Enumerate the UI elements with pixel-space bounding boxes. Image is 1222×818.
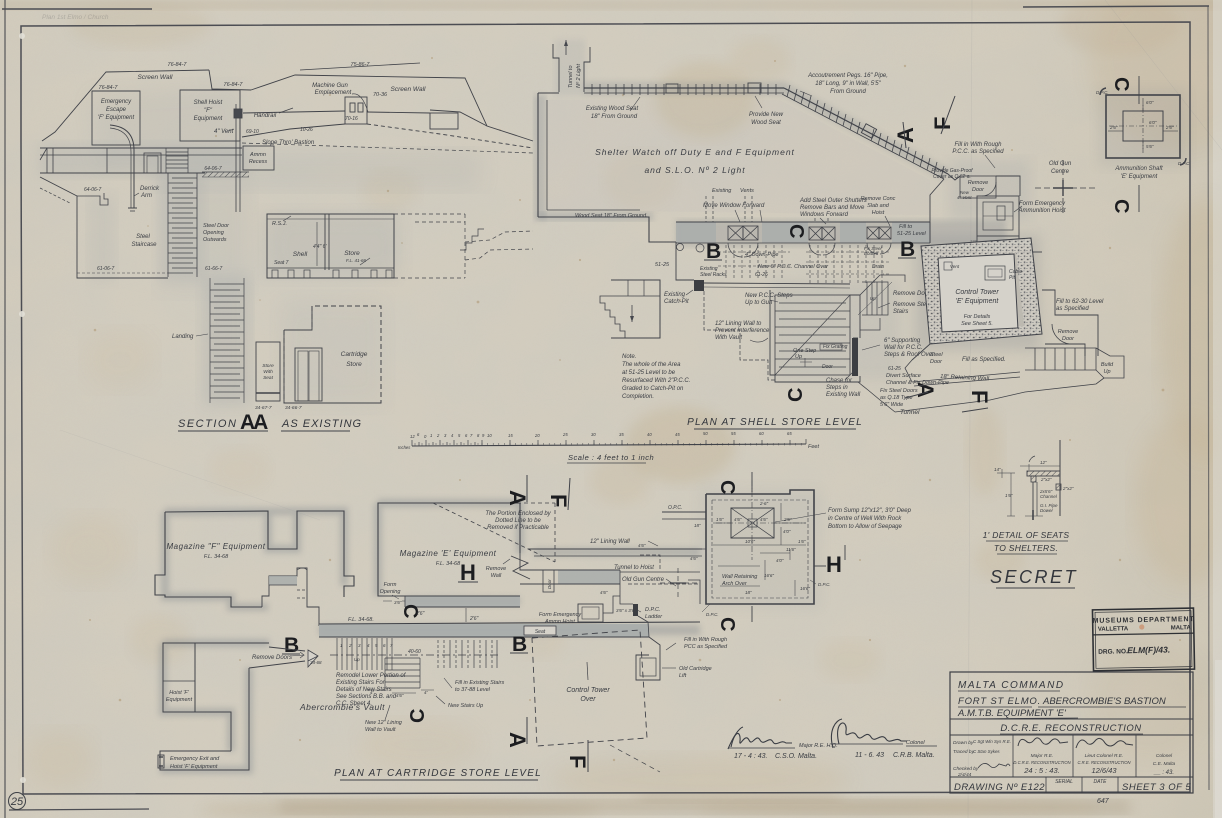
svg-text:C: C — [399, 604, 421, 618]
svg-text:2'6": 2'6" — [1165, 125, 1174, 130]
svg-text:Prevent Interference: Prevent Interference — [715, 328, 770, 334]
svg-text:Hoist 'F' Equipment: Hoist 'F' Equipment — [170, 764, 218, 770]
svg-text:16'6": 16'6" — [764, 573, 774, 578]
svg-text:'F' Equipment: 'F' Equipment — [98, 115, 135, 121]
svg-text:Landing: Landing — [172, 334, 194, 340]
svg-text:1'6": 1'6" — [798, 539, 806, 544]
svg-text:Door: Door — [822, 364, 833, 370]
svg-text:Nº 2 Light: Nº 2 Light — [575, 64, 582, 88]
svg-text:Remove Bars and Move: Remove Bars and Move — [800, 205, 865, 211]
svg-text:"F": "F" — [204, 108, 213, 114]
svg-text:4': 4' — [424, 690, 428, 695]
svg-text:4'0": 4'0" — [783, 529, 791, 534]
svg-text:Vent: Vent — [950, 264, 960, 269]
svg-text:Door: Door — [1062, 336, 1075, 342]
svg-text:11'6": 11'6" — [786, 547, 796, 552]
svg-text:10: 10 — [487, 433, 492, 438]
svg-text:Escape: Escape — [106, 107, 127, 113]
svg-text:Wall Retaining: Wall Retaining — [722, 574, 758, 580]
svg-text:F.L. 41-66: F.L. 41-66 — [346, 258, 366, 263]
svg-text:18" From Ground: 18" From Ground — [591, 114, 638, 120]
svg-text:C: C — [785, 388, 807, 402]
svg-text:C: C — [716, 617, 738, 631]
svg-text:61-25: 61-25 — [888, 366, 901, 372]
svg-text:Fill to 62-30 Level: Fill to 62-30 Level — [1056, 299, 1104, 305]
svg-text:65: 65 — [787, 431, 792, 436]
svg-text:in Centre of Well With Rock: in Centre of Well With Rock — [828, 516, 902, 522]
svg-text:From Ground: From Ground — [830, 89, 866, 95]
svg-text:34-68: 34-68 — [310, 660, 322, 665]
svg-text:Emergency Exit and: Emergency Exit and — [170, 756, 220, 762]
svg-text:MALTA: MALTA — [1171, 625, 1192, 631]
svg-text:Drain: Drain — [872, 264, 884, 270]
svg-text:Emplacement: Emplacement — [315, 90, 352, 96]
svg-text:PCC as Specified: PCC as Specified — [684, 644, 728, 650]
svg-text:70-36: 70-36 — [373, 92, 388, 98]
svg-text:VALLETTA: VALLETTA — [1098, 626, 1129, 633]
svg-text:1: 1 — [430, 433, 432, 438]
svg-text:TO SHELTERS.: TO SHELTERS. — [994, 543, 1058, 553]
svg-text:F: F — [930, 117, 955, 130]
svg-text:A: A — [505, 732, 530, 748]
svg-text:'E' Equipment: 'E' Equipment — [956, 298, 1000, 305]
svg-text:New Stairs Up: New Stairs Up — [448, 703, 483, 709]
svg-text:Machine Gun: Machine Gun — [312, 83, 348, 89]
svg-text:Build: Build — [1101, 362, 1114, 368]
svg-text:Magazine "F" Equipment: Magazine "F" Equipment — [167, 542, 266, 551]
svg-text:Details of New Stairs: Details of New Stairs — [336, 687, 392, 693]
svg-text:61-06-7: 61-06-7 — [97, 266, 114, 272]
svg-text:Arm: Arm — [140, 193, 152, 199]
svg-text:14": 14" — [994, 467, 1001, 472]
svg-text:MALTA COMMAND: MALTA COMMAND — [958, 680, 1065, 691]
svg-text:D.C.R.E. RECONSTRUCTION: D.C.R.E. RECONSTRUCTION — [1013, 760, 1071, 765]
svg-text:F: F — [546, 494, 571, 507]
svg-text:Scale : 4 feet to 1 inch: Scale : 4 feet to 1 inch — [568, 453, 654, 462]
svg-text:DRAWING Nº E122: DRAWING Nº E122 — [954, 782, 1045, 793]
svg-text:as Specified: as Specified — [1056, 306, 1089, 312]
svg-text:25: 25 — [562, 432, 568, 437]
svg-text:50: 50 — [703, 431, 708, 436]
svg-text:F: F — [967, 390, 992, 403]
svg-text:Seat 7: Seat 7 — [274, 260, 289, 266]
svg-text:76-84-7: 76-84-7 — [224, 82, 244, 88]
svg-text:Up: Up — [354, 657, 360, 662]
svg-text:D.P.C.: D.P.C. — [818, 582, 831, 587]
svg-text:Remove Steel: Remove Steel — [893, 302, 931, 308]
svg-text:SHEET 3 OF 5: SHEET 3 OF 5 — [1122, 782, 1191, 793]
svg-text:34-66-7: 34-66-7 — [285, 405, 302, 411]
svg-text:12: 12 — [410, 434, 415, 439]
svg-text:Control Tower: Control Tower — [566, 687, 610, 694]
svg-text:40: 40 — [647, 432, 652, 437]
svg-text:C: C — [1110, 77, 1132, 91]
svg-text:Existing Wood Seat: Existing Wood Seat — [586, 106, 639, 112]
svg-text:C.E. Malta: C.E. Malta — [1153, 761, 1176, 767]
svg-text:Arch Over: Arch Over — [721, 581, 748, 587]
svg-text:Lieut Colonel R.E.: Lieut Colonel R.E. — [1085, 753, 1124, 759]
svg-text:18": 18" — [745, 590, 752, 595]
svg-text:A.M.T.B. EQUIPMENT 'E': A.M.T.B. EQUIPMENT 'E' — [957, 708, 1067, 719]
svg-text:Fill as Specified.: Fill as Specified. — [962, 357, 1006, 363]
svg-text:Remove: Remove — [968, 180, 988, 186]
svg-text:Ammn Hoist: Ammn Hoist — [544, 619, 575, 625]
svg-text:4'6": 4'6" — [600, 590, 608, 595]
svg-text:C: C — [785, 224, 807, 238]
svg-text:35: 35 — [619, 432, 624, 437]
svg-text:70-16: 70-16 — [345, 116, 358, 122]
svg-text:Chase for: Chase for — [826, 378, 853, 384]
svg-text:Windows Forward: Windows Forward — [800, 212, 849, 218]
svg-text:A: A — [505, 490, 530, 506]
svg-text:18": 18" — [694, 523, 701, 528]
svg-text:FORT ST ELMO.: FORT ST ELMO. — [958, 696, 1041, 707]
svg-text:at 51-25 Level to be: at 51-25 Level to be — [622, 370, 676, 376]
svg-text:Fix Steel Doors: Fix Steel Doors — [880, 388, 918, 394]
svg-text:Recess: Recess — [249, 159, 268, 165]
svg-text:Drawn by: Drawn by — [953, 740, 974, 746]
svg-text:Fill to: Fill to — [899, 224, 912, 230]
svg-text:Opening: Opening — [203, 230, 225, 236]
svg-text:Seat: Seat — [263, 375, 274, 381]
svg-text:6'0": 6'0" — [1146, 100, 1154, 105]
svg-text:See Sections B.B. and: See Sections B.B. and — [336, 694, 397, 700]
svg-text:H: H — [460, 560, 476, 585]
svg-text:F: F — [565, 755, 590, 768]
svg-text:Existing: Existing — [664, 292, 686, 298]
svg-text:64-06-7: 64-06-7 — [84, 187, 101, 193]
svg-text:Colonel: Colonel — [906, 740, 925, 746]
svg-text:ELM(F)/43.: ELM(F)/43. — [1127, 645, 1170, 656]
svg-text:PLAN AT SHELL STORE LEVEL: PLAN AT SHELL STORE LEVEL — [687, 417, 863, 428]
svg-text:Old Cartridge: Old Cartridge — [679, 666, 712, 672]
svg-text:Store: Store — [262, 363, 274, 369]
svg-text:40-60: 40-60 — [408, 649, 421, 655]
svg-text:12": 12" — [1040, 460, 1047, 465]
svg-text:Shell Hoist: Shell Hoist — [194, 100, 223, 106]
svg-text:Up: Up — [1103, 369, 1110, 375]
svg-text:Ammn: Ammn — [249, 152, 266, 158]
svg-text:Outwards: Outwards — [203, 237, 227, 243]
svg-text:60: 60 — [759, 431, 764, 436]
svg-text:4" Vent: 4" Vent — [957, 195, 972, 200]
svg-text:Steps & Roof Over: Steps & Roof Over — [884, 352, 935, 358]
svg-text:Form Emergency: Form Emergency — [1019, 201, 1066, 207]
svg-text:Steps in: Steps in — [826, 385, 848, 391]
svg-text:F.L. 34-68.: F.L. 34-68. — [348, 617, 374, 623]
svg-text:Fill in With Rough: Fill in With Rough — [955, 142, 1003, 148]
svg-text:C Sgt Win Sys R.E.: C Sgt Win Sys R.E. — [973, 739, 1011, 744]
svg-text:Bottom to Allow of Seepage: Bottom to Allow of Seepage — [828, 524, 902, 530]
svg-text:Seat: Seat — [535, 629, 546, 635]
svg-text:51-25 Level: 51-25 Level — [897, 231, 927, 237]
svg-text:Hoist 'F': Hoist 'F' — [169, 690, 189, 696]
svg-text:The Portion Enclosed by: The Portion Enclosed by — [485, 511, 551, 517]
svg-text:1' DETAIL OF SEATS: 1' DETAIL OF SEATS — [983, 530, 1070, 540]
svg-text:F.L. 34-68: F.L. 34-68 — [204, 554, 229, 560]
svg-text:Completion.: Completion. — [622, 394, 654, 400]
svg-text:Stairs: Stairs — [893, 309, 908, 315]
svg-text:1'6": 1'6" — [1005, 493, 1013, 498]
svg-text:R.S.J.: R.S.J. — [272, 221, 287, 227]
svg-text:C: C — [716, 480, 738, 494]
svg-text:C.R.B. Malta.: C.R.B. Malta. — [893, 752, 935, 759]
svg-text:Abercrombie's Vault: Abercrombie's Vault — [299, 702, 385, 712]
svg-text:Opening: Opening — [380, 589, 402, 595]
svg-text:Note.: Note. — [622, 354, 636, 360]
svg-text:30: 30 — [591, 432, 596, 437]
svg-text:51-25: 51-25 — [655, 262, 670, 268]
svg-text:Steel Racks: Steel Racks — [700, 272, 727, 278]
svg-text:Equipment: Equipment — [194, 116, 223, 122]
svg-text:The whole of the Area: The whole of the Area — [622, 362, 681, 368]
svg-text:Over: Over — [580, 696, 596, 703]
svg-text:Up to Gun: Up to Gun — [745, 300, 773, 306]
svg-text:Hoist: Hoist — [872, 210, 885, 216]
svg-text:With Vault: With Vault — [715, 335, 742, 341]
svg-text:New P.C.C. Steps: New P.C.C. Steps — [745, 293, 793, 299]
svg-text:SERIAL: SERIAL — [1055, 779, 1073, 785]
svg-text:Steel: Steel — [136, 234, 150, 240]
svg-text:Fix Grating: Fix Grating — [823, 344, 848, 350]
svg-text:Form Sump 12"x12", 3'0" Deep: Form Sump 12"x12", 3'0" Deep — [828, 508, 912, 514]
svg-text:O.P.C.: O.P.C. — [668, 505, 682, 511]
svg-text:Ammunition Shaft: Ammunition Shaft — [1114, 166, 1163, 172]
svg-text:25: 25 — [10, 796, 24, 808]
svg-text:4'6": 4'6" — [396, 693, 404, 698]
svg-text:Steel: Steel — [930, 352, 943, 358]
svg-text:Emergency: Emergency — [101, 99, 132, 105]
svg-text:ABERCROMBIE'S BASTION: ABERCROMBIE'S BASTION — [1042, 696, 1166, 707]
svg-text:Screen Wall: Screen Wall — [391, 86, 426, 93]
svg-text:Remove Conc: Remove Conc — [861, 196, 896, 202]
svg-text:D.C.R.E. RECONSTRUCTION: D.C.R.E. RECONSTRUCTION — [1000, 723, 1141, 734]
svg-text:D.P.C.: D.P.C. — [645, 607, 661, 613]
svg-text:2/4/44: 2/4/44 — [957, 772, 972, 778]
svg-text:18" Long, 9" in Wall, 5'5": 18" Long, 9" in Wall, 5'5" — [815, 81, 881, 87]
svg-text:Catch-Pit: Catch-Pit — [664, 299, 689, 305]
svg-text:Move Window Forward: Move Window Forward — [703, 203, 765, 209]
svg-text:Door: Door — [547, 579, 552, 589]
svg-text:45: 45 — [675, 432, 680, 437]
svg-text:C.S.O. Malta.: C.S.O. Malta. — [775, 753, 817, 760]
svg-text:Derrick: Derrick — [140, 186, 160, 192]
svg-text:Control Tower: Control Tower — [955, 289, 999, 296]
svg-text:to 37-88 Level: to 37-88 Level — [455, 687, 491, 693]
svg-text:69-10: 69-10 — [246, 129, 259, 135]
svg-text:Pit: Pit — [1009, 275, 1015, 281]
svg-text:Divert Surface: Divert Surface — [886, 373, 921, 379]
svg-text:Traced by: Traced by — [953, 749, 975, 755]
svg-text:Fill in With Rough: Fill in With Rough — [684, 637, 727, 643]
svg-text:Remove: Remove — [486, 566, 506, 572]
svg-text:2'6": 2'6" — [469, 616, 479, 622]
svg-text:Door: Door — [930, 359, 943, 365]
svg-text:Equipment: Equipment — [166, 697, 193, 703]
svg-text:12" Lining Wall: 12" Lining Wall — [590, 539, 630, 545]
svg-text:16'6": 16'6" — [800, 586, 810, 591]
svg-text:Steel Door: Steel Door — [203, 223, 230, 229]
svg-text:61-26: 61-26 — [755, 272, 768, 278]
svg-text:Cartridge: Cartridge — [341, 351, 368, 358]
svg-text:Remove: Remove — [1058, 329, 1078, 335]
svg-text:2: 2 — [348, 643, 352, 648]
svg-text:Wall for P.C.C.: Wall for P.C.C. — [884, 345, 923, 351]
svg-text:Magazine 'E' Equipment: Magazine 'E' Equipment — [400, 549, 497, 558]
svg-text:12/6/43: 12/6/43 — [1091, 766, 1117, 775]
svg-text:Form Emergency: Form Emergency — [539, 612, 582, 618]
svg-text:and S.L.O. Nº 2 Light: and S.L.O. Nº 2 Light — [644, 165, 745, 175]
svg-text:DATE: DATE — [1094, 779, 1108, 785]
svg-text:17 - 4 : 43.: 17 - 4 : 43. — [734, 753, 768, 760]
svg-text:1'6": 1'6" — [716, 517, 724, 522]
svg-text:P.C.C. as Specified: P.C.C. as Specified — [952, 149, 1004, 155]
svg-text:C: C — [407, 709, 429, 723]
svg-text:2"x2": 2"x2" — [1040, 477, 1052, 482]
svg-text:Provide New: Provide New — [749, 112, 784, 118]
svg-text:Slope Thro' Bastion: Slope Thro' Bastion — [262, 140, 315, 146]
svg-text:Slab and: Slab and — [867, 203, 890, 209]
svg-text:Door: Door — [972, 187, 985, 193]
svg-text:11 - 6. 43: 11 - 6. 43 — [855, 752, 884, 759]
svg-text:Existing Stairs For: Existing Stairs For — [336, 680, 386, 686]
svg-text:Fill in Existing Stairs: Fill in Existing Stairs — [455, 680, 504, 686]
svg-text:For Details: For Details — [964, 314, 991, 320]
svg-text:New 12" Lining: New 12" Lining — [365, 720, 403, 726]
svg-text:__ : 43.: __ : 43. — [1153, 770, 1174, 776]
svg-text:C Stan Sykes: C Stan Sykes — [973, 749, 1000, 754]
svg-text:Staircase: Staircase — [131, 242, 157, 248]
svg-text:76-84-7: 76-84-7 — [168, 62, 188, 68]
svg-text:55: 55 — [731, 431, 736, 436]
svg-text:4'6": 4'6" — [760, 517, 768, 522]
svg-text:F.L. 34-68: F.L. 34-68 — [436, 561, 461, 567]
svg-text:Wood Seat 18" From Ground.: Wood Seat 18" From Ground. — [575, 213, 648, 219]
svg-text:Old Gun: Old Gun — [1049, 161, 1072, 167]
svg-text:Up: Up — [795, 354, 802, 360]
svg-text:Dotted Line to be: Dotted Line to be — [495, 518, 541, 524]
svg-text:Ammunition Hoist: Ammunition Hoist — [1017, 208, 1065, 214]
svg-text:4" Down-Pipe: 4" Down-Pipe — [745, 252, 778, 258]
svg-text:Removed if Practicable: Removed if Practicable — [487, 525, 549, 531]
svg-text:Store: Store — [344, 250, 360, 257]
svg-text:Colonel: Colonel — [1156, 753, 1173, 759]
svg-text:15: 15 — [508, 433, 513, 438]
svg-text:Accoutrement Pegs. 16" Pipe,: Accoutrement Pegs. 16" Pipe, — [807, 73, 888, 79]
svg-text:64-06-7: 64-06-7 — [204, 166, 221, 172]
svg-text:Inches: Inches — [398, 445, 411, 450]
svg-text:2-6": 2-6" — [759, 501, 769, 506]
svg-text:Old Gun Centre: Old Gun Centre — [622, 577, 665, 583]
svg-text:Channel: Channel — [1040, 494, 1058, 499]
svg-text:See Sheet 5.: See Sheet 5. — [961, 321, 993, 327]
svg-text:as Q.18 Type: as Q.18 Type — [880, 395, 913, 401]
svg-text:Shell: Shell — [293, 251, 308, 258]
svg-text:2'6": 2'6" — [1109, 125, 1118, 130]
svg-text:10'6": 10'6" — [745, 539, 755, 544]
svg-text:61-66-7: 61-66-7 — [205, 266, 222, 272]
svg-text:Vents: Vents — [740, 188, 754, 194]
svg-text:Add Steel Outer Shutters: Add Steel Outer Shutters — [799, 198, 867, 204]
svg-text:20: 20 — [534, 433, 540, 438]
svg-text:4'4" 6': 4'4" 6' — [313, 244, 327, 250]
svg-text:Existing: Existing — [712, 188, 732, 194]
svg-text:Feet: Feet — [808, 444, 819, 450]
svg-text:With: With — [263, 369, 273, 375]
svg-text:Existing Wall: Existing Wall — [826, 392, 861, 398]
svg-text:C.R.E. RECONSTRUCTION: C.R.E. RECONSTRUCTION — [1077, 760, 1131, 765]
svg-text:Wood Seat: Wood Seat — [751, 120, 781, 126]
svg-text:Up: Up — [870, 296, 876, 301]
svg-text:5'6": 5'6" — [1146, 144, 1154, 149]
svg-text:4'6": 4'6" — [638, 543, 646, 548]
svg-text:12" Lining Wall to: 12" Lining Wall to — [715, 321, 762, 327]
svg-text:Remove Doors: Remove Doors — [252, 655, 292, 661]
svg-text:C: C — [1110, 199, 1132, 213]
svg-text:Major R.E.: Major R.E. — [1031, 753, 1054, 759]
svg-text:Store: Store — [346, 361, 362, 368]
svg-text:Graded to Catch-Pit on: Graded to Catch-Pit on — [622, 386, 684, 392]
svg-text:Dowel: Dowel — [1040, 508, 1054, 513]
svg-text:SECTION: SECTION — [178, 418, 237, 430]
svg-text:Screen Wall: Screen Wall — [138, 74, 173, 81]
svg-text:Wall: Wall — [491, 573, 502, 579]
svg-text:D.P.C.: D.P.C. — [1096, 90, 1109, 95]
svg-text:Resurfaced With 2"P.C.C.: Resurfaced With 2"P.C.C. — [622, 378, 690, 384]
svg-text:AS EXISTING: AS EXISTING — [281, 418, 362, 430]
svg-text:Checked by: Checked by — [953, 766, 979, 772]
svg-text:'E' Equipment: 'E' Equipment — [1121, 174, 1158, 180]
svg-text:4'6": 4'6" — [734, 517, 742, 522]
svg-text:Ladder: Ladder — [645, 614, 663, 620]
svg-text:Wall to Vault: Wall to Vault — [365, 727, 396, 733]
svg-text:6'0": 6'0" — [1149, 120, 1157, 125]
svg-text:Tunnel to: Tunnel to — [568, 65, 574, 88]
svg-text:Plan 1st Elmo / Church: Plan 1st Elmo / Church — [42, 14, 109, 21]
svg-text:4'0": 4'0" — [776, 558, 784, 563]
svg-text:Remodel Lower Portion of: Remodel Lower Portion of — [336, 673, 407, 679]
svg-text:DRG. NO.: DRG. NO. — [1098, 648, 1128, 656]
svg-text:76-84-7: 76-84-7 — [99, 85, 119, 91]
svg-text:Centre: Centre — [1051, 169, 1070, 175]
svg-text:H: H — [826, 552, 842, 577]
svg-text:Bottom: Bottom — [864, 251, 879, 256]
svg-text:2"x2": 2"x2" — [1062, 486, 1074, 491]
svg-text:Handrail: Handrail — [254, 113, 277, 119]
svg-text:647: 647 — [1097, 798, 1110, 805]
svg-text:Shelter Watch off Duty E a: Shelter Watch off Duty E and F Equipment — [595, 147, 795, 157]
svg-text:4'6": 4'6" — [690, 556, 698, 561]
svg-text:New 6" P.C.C. Channel Over: New 6" P.C.C. Channel Over — [758, 264, 829, 270]
svg-text:Form: Form — [384, 582, 397, 588]
svg-text:24 : 5 : 43.: 24 : 5 : 43. — [1023, 766, 1059, 775]
svg-text:PLAN AT CARTRIDGE STORE LEVEL: PLAN AT CARTRIDGE STORE LEVEL — [334, 768, 542, 779]
svg-text:SECRET: SECRET — [990, 567, 1078, 587]
svg-text:Lift: Lift — [679, 673, 687, 679]
svg-text:6" Supporting: 6" Supporting — [884, 338, 921, 344]
